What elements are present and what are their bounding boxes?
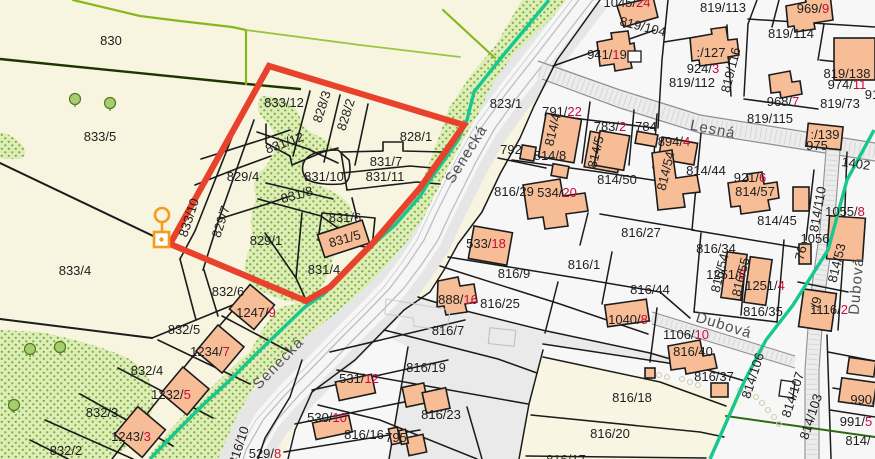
svg-text:832/5: 832/5 bbox=[168, 322, 201, 337]
svg-text:888/16: 888/16 bbox=[438, 292, 478, 307]
svg-text:819/73: 819/73 bbox=[820, 96, 860, 111]
svg-text:1045/24: 1045/24 bbox=[603, 0, 650, 10]
svg-text:529/8: 529/8 bbox=[249, 446, 282, 459]
svg-text:1247/9: 1247/9 bbox=[236, 305, 276, 320]
svg-text:1232/5: 1232/5 bbox=[151, 387, 191, 402]
svg-text:1234/7: 1234/7 bbox=[190, 344, 230, 359]
svg-text:991/5: 991/5 bbox=[840, 414, 873, 429]
svg-text:816/16: 816/16 bbox=[344, 427, 384, 442]
svg-text:968/7: 968/7 bbox=[767, 94, 800, 109]
svg-text:1040/8: 1040/8 bbox=[608, 312, 648, 327]
svg-text:816/25: 816/25 bbox=[480, 296, 520, 311]
svg-text:816/44: 816/44 bbox=[630, 282, 670, 297]
svg-text:530/10: 530/10 bbox=[307, 410, 347, 425]
svg-text:831/11: 831/11 bbox=[366, 169, 405, 184]
svg-text:833/12: 833/12 bbox=[264, 95, 304, 110]
svg-text:816/19: 816/19 bbox=[406, 360, 446, 375]
svg-text:816/18: 816/18 bbox=[612, 390, 652, 405]
svg-text:816/23: 816/23 bbox=[421, 407, 461, 422]
svg-text:828/1: 828/1 bbox=[400, 129, 433, 144]
svg-text:814/45: 814/45 bbox=[757, 213, 797, 228]
svg-text:816/40: 816/40 bbox=[673, 344, 713, 359]
svg-text:814/: 814/ bbox=[845, 433, 871, 448]
svg-text:814/8: 814/8 bbox=[534, 148, 567, 163]
svg-text:531/12: 531/12 bbox=[339, 371, 379, 386]
svg-text:816/7: 816/7 bbox=[432, 323, 465, 338]
svg-text:830: 830 bbox=[100, 33, 122, 48]
svg-text:816/37: 816/37 bbox=[694, 369, 734, 384]
svg-text:1055/8: 1055/8 bbox=[825, 204, 865, 219]
svg-text:784: 784 bbox=[635, 119, 657, 134]
svg-text:816/29: 816/29 bbox=[494, 184, 534, 199]
svg-text:816/35: 816/35 bbox=[743, 304, 783, 319]
svg-text:819/112: 819/112 bbox=[669, 75, 715, 90]
svg-text:832/6: 832/6 bbox=[212, 284, 245, 299]
svg-text:894/4: 894/4 bbox=[658, 134, 691, 149]
svg-text:783/2: 783/2 bbox=[594, 119, 627, 134]
svg-text:814/57: 814/57 bbox=[735, 184, 775, 199]
svg-text:814/44: 814/44 bbox=[686, 163, 726, 178]
svg-text:832/3: 832/3 bbox=[86, 405, 119, 420]
svg-text:795: 795 bbox=[385, 430, 407, 445]
svg-text:832/4: 832/4 bbox=[131, 363, 164, 378]
svg-text:941/19: 941/19 bbox=[587, 47, 627, 62]
svg-text:832/2: 832/2 bbox=[50, 443, 83, 458]
svg-text:969/9: 969/9 bbox=[797, 1, 830, 16]
svg-text:921/6: 921/6 bbox=[734, 170, 767, 185]
svg-text:1243/3: 1243/3 bbox=[111, 429, 151, 444]
svg-text:924/3: 924/3 bbox=[687, 61, 720, 76]
svg-text:975: 975 bbox=[806, 138, 828, 153]
svg-text:819/113: 819/113 bbox=[700, 0, 746, 15]
svg-text:792: 792 bbox=[500, 142, 522, 157]
svg-text::/127: :/127 bbox=[697, 45, 726, 60]
svg-text:833/5: 833/5 bbox=[84, 129, 117, 144]
svg-text:816/20: 816/20 bbox=[590, 426, 630, 441]
svg-text:1251/4: 1251/4 bbox=[745, 278, 785, 293]
svg-text:1106/10: 1106/10 bbox=[663, 327, 709, 342]
svg-text:816/9: 816/9 bbox=[498, 266, 531, 281]
svg-text:831/7: 831/7 bbox=[370, 154, 403, 169]
svg-text:814/50: 814/50 bbox=[597, 172, 637, 187]
svg-text:816/1: 816/1 bbox=[568, 257, 601, 272]
svg-text:819/115: 819/115 bbox=[747, 111, 793, 126]
svg-text:990/: 990/ bbox=[850, 392, 875, 407]
svg-text:816/17: 816/17 bbox=[546, 452, 586, 459]
svg-text:819/114: 819/114 bbox=[768, 26, 814, 41]
svg-text:534/20: 534/20 bbox=[537, 185, 577, 200]
svg-text:829/4: 829/4 bbox=[227, 169, 260, 184]
svg-text:831/10: 831/10 bbox=[304, 169, 344, 184]
svg-text:974/11: 974/11 bbox=[828, 77, 867, 92]
svg-text:831/4: 831/4 bbox=[308, 262, 341, 277]
svg-text:816/27: 816/27 bbox=[621, 225, 661, 240]
svg-text:833/4: 833/4 bbox=[59, 263, 92, 278]
svg-text:823/1: 823/1 bbox=[490, 96, 523, 111]
svg-text:533/18: 533/18 bbox=[466, 236, 506, 251]
svg-text:91: 91 bbox=[865, 87, 875, 102]
svg-text:1056: 1056 bbox=[801, 231, 830, 246]
svg-text:831/6: 831/6 bbox=[329, 210, 362, 225]
svg-text:829/1: 829/1 bbox=[250, 233, 283, 248]
